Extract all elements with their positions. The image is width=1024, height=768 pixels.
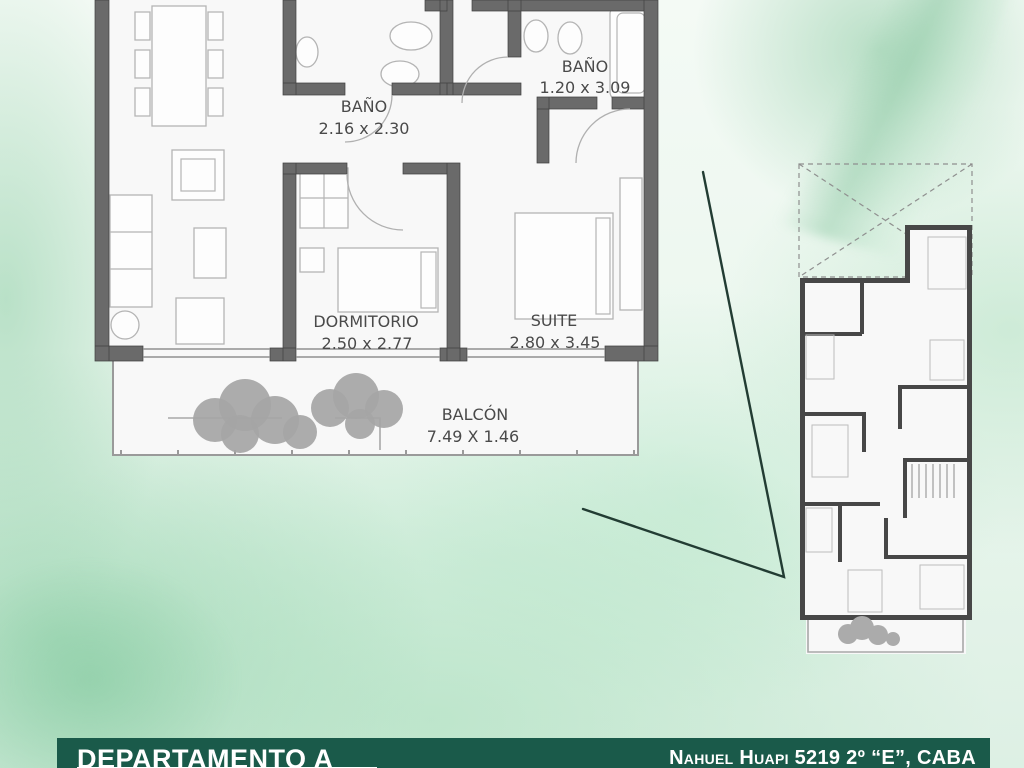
bathroom1-label: BAÑO (341, 97, 387, 116)
armchair-1 (172, 150, 224, 200)
plant-blob (345, 409, 375, 439)
nightstand (300, 248, 324, 272)
bathroom2-dimensions: 1.20 x 3.09 (540, 78, 631, 97)
mini-plant (886, 632, 900, 646)
dining-table (152, 6, 206, 126)
main-floor-plan: BAÑO 2.16 x 2.30 BAÑO 1.20 x 3.09 DORMIT… (95, 0, 658, 455)
bidet (558, 22, 582, 54)
armchair-2 (194, 228, 226, 278)
bedroom-label: DORMITORIO (313, 312, 418, 331)
side-table (111, 311, 139, 339)
bedroom-dimensions: 2.50 x 2.77 (322, 334, 413, 353)
sink (296, 37, 318, 67)
plant-blob (283, 415, 317, 449)
bathroom1-dimensions: 2.16 x 2.30 (319, 119, 410, 138)
building-paper (800, 225, 972, 620)
plant-blob (221, 415, 259, 453)
balcony-label: BALCÓN (442, 405, 509, 424)
bed-dormitorio (338, 248, 438, 312)
address-text: Nahuel Huapi 5219 2º “E”, CABA (669, 747, 976, 768)
suite-wardrobe (620, 178, 642, 310)
toilet (390, 22, 432, 50)
balcony-dimensions: 7.49 X 1.46 (427, 427, 519, 446)
bathroom2-label: BAÑO (562, 57, 608, 76)
toilet (524, 20, 548, 52)
coffee-table (176, 298, 224, 344)
mini-plant (868, 625, 888, 645)
sofa (110, 195, 152, 307)
footer-bar: DEPARTAMENTO A Nahuel Huapi 5219 2º “E”,… (57, 738, 990, 768)
suite-dimensions: 2.80 x 3.45 (510, 333, 601, 352)
bed-suite (515, 213, 613, 319)
plan-canvas: BAÑO 2.16 x 2.30 BAÑO 1.20 x 3.09 DORMIT… (0, 0, 1024, 768)
mini-balcony (806, 616, 966, 654)
mini-floor-plan (799, 164, 972, 654)
suite-label: SUITE (531, 311, 577, 330)
flyer-page: BAÑO 2.16 x 2.30 BAÑO 1.20 x 3.09 DORMIT… (0, 0, 1024, 768)
